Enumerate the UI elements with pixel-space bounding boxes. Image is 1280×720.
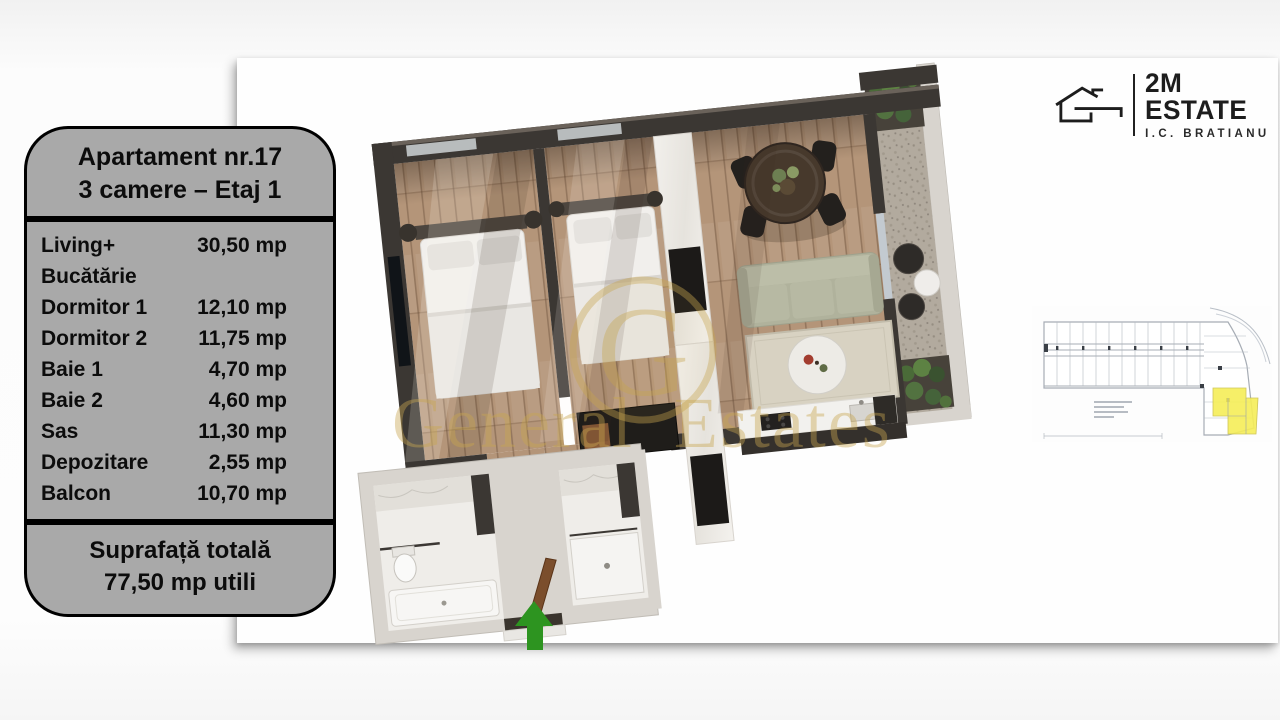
room-row: Baie 2 4,60 mp (41, 385, 287, 416)
room-table: Living+ 30,50 mp Bucătărie Dormitor 1 12… (24, 222, 336, 519)
room-area: 4,60 mp (209, 385, 287, 416)
room-label: Baie 1 (41, 354, 103, 385)
info-panel: Apartament nr.17 3 camere – Etaj 1 Livin… (24, 126, 336, 617)
room-area: 11,75 mp (198, 323, 287, 354)
house-icon (1052, 79, 1127, 131)
total-label: Suprafață totală (33, 535, 327, 567)
apartment-title: Apartament nr.17 (33, 141, 327, 174)
brand-logo: 2M ESTATE I.C. BRATIANU (1052, 70, 1280, 141)
room-area: 11,30 mp (198, 416, 287, 447)
room-row: Bucătărie (41, 261, 287, 292)
room-area: 4,70 mp (209, 354, 287, 385)
total-value: 77,50 mp utili (33, 567, 327, 599)
apartment-render (322, 63, 992, 655)
room-label: Depozitare (41, 447, 148, 478)
room-row: Living+ 30,50 mp (41, 230, 287, 261)
site-plan-thumbnail (1032, 306, 1272, 442)
room-label: Bucătărie (41, 261, 137, 292)
panel-footer: Suprafață totală 77,50 mp utili (24, 519, 336, 617)
room-row: Dormitor 1 12,10 mp (41, 292, 287, 323)
room-area: 30,50 mp (197, 230, 287, 261)
brand-name: 2M ESTATE (1145, 70, 1276, 124)
room-label: Dormitor 1 (41, 292, 147, 323)
brand-location: I.C. BRATIANU (1145, 129, 1280, 141)
panel-header: Apartament nr.17 3 camere – Etaj 1 (24, 126, 336, 222)
page-background: General Estates G (0, 0, 1280, 720)
kitchen-appliance (668, 246, 707, 313)
bathrooms (358, 443, 662, 644)
room-label: Dormitor 2 (41, 323, 147, 354)
room-area: 12,10 mp (197, 292, 287, 323)
room-row: Baie 1 4,70 mp (41, 354, 287, 385)
apartment-subtitle: 3 camere – Etaj 1 (33, 174, 327, 207)
room-label: Baie 2 (41, 385, 103, 416)
room-row: Dormitor 2 11,75 mp (41, 323, 287, 354)
room-area: 2,55 mp (209, 447, 287, 478)
room-row: Balcon 10,70 mp (41, 478, 287, 509)
room-row: Sas 11,30 mp (41, 416, 287, 447)
room-area: 10,70 mp (197, 478, 287, 509)
room-row: Depozitare 2,55 mp (41, 447, 287, 478)
room-label: Living+ (41, 230, 115, 261)
room-label: Sas (41, 416, 78, 447)
room-label: Balcon (41, 478, 111, 509)
logo-divider (1133, 74, 1136, 136)
